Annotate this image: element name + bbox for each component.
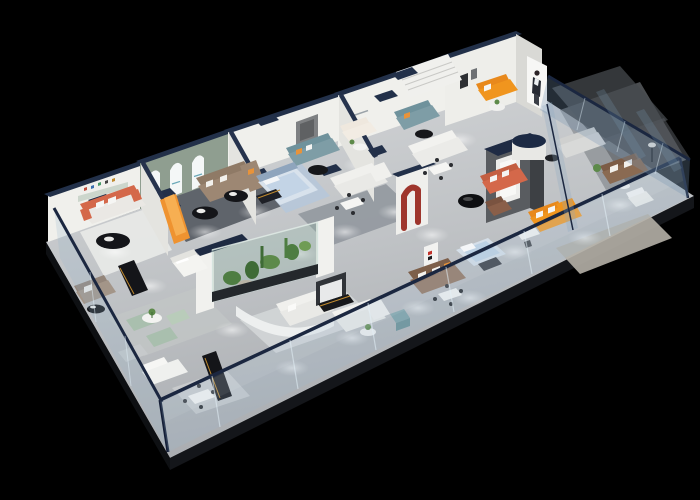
potted-plant — [350, 140, 355, 145]
egg-coffee-table — [458, 194, 484, 208]
terrarium-plant — [299, 241, 311, 251]
egg-table-gloss — [463, 197, 473, 201]
dining-chair — [449, 163, 453, 167]
round-kiosk-navy-top — [512, 134, 546, 148]
coffee-table-tray — [197, 209, 206, 213]
spotlight-glow — [215, 322, 249, 338]
dining-chair — [439, 176, 443, 180]
coffee-table-black — [192, 207, 218, 220]
coffee-table-tray — [104, 237, 114, 242]
spotlight-glow — [188, 224, 222, 240]
dining-chair — [361, 198, 365, 202]
coffee-table-black — [224, 190, 248, 202]
terrarium-plant — [245, 261, 259, 279]
coffee-table-black — [415, 130, 433, 139]
potted-plant — [495, 100, 500, 105]
coffee-table-black — [308, 165, 328, 175]
dining-chair — [351, 211, 355, 215]
wall-art-frame — [471, 68, 477, 80]
side-table-white — [353, 144, 367, 151]
spotlight-glow — [415, 227, 449, 243]
person-head — [534, 70, 539, 75]
dining-chair — [347, 193, 351, 197]
showroom-render — [0, 0, 700, 500]
terrarium-plant — [223, 271, 241, 285]
floorplan-svg — [0, 0, 700, 500]
dining-chair — [335, 206, 339, 210]
dining-chair — [423, 171, 427, 175]
coffee-table-tray — [229, 192, 237, 196]
dining-chair — [435, 158, 439, 162]
terrarium-pillar — [316, 216, 334, 278]
potted-plant — [593, 164, 601, 172]
coffee-table-black — [96, 233, 130, 249]
